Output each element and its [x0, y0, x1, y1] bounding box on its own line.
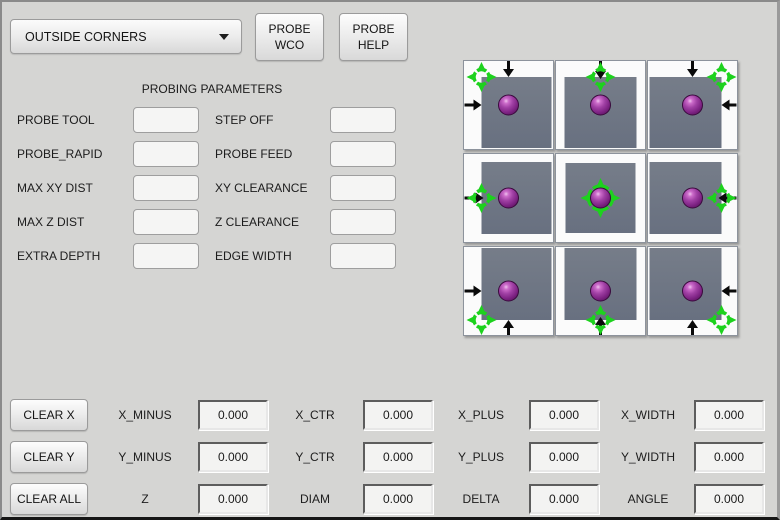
max-xy-dist-input[interactable]	[133, 175, 199, 201]
probe-help-button-label-line2: HELP	[358, 37, 389, 53]
parameter-row: MAX Z DIST Z CLEARANCE	[2, 208, 462, 236]
chevron-down-icon	[219, 34, 229, 40]
approach-arrow-up-icon	[687, 320, 698, 335]
approach-arrow-down-icon	[503, 61, 514, 77]
y-minus-readout: 0.000	[198, 442, 268, 472]
probe-ball-icon	[499, 95, 519, 115]
probe-cell-graphic	[464, 61, 553, 149]
workpiece-face	[482, 77, 552, 148]
probe-help-button-label-line1: PROBE	[352, 21, 394, 37]
z-label: Z	[102, 483, 188, 515]
approach-arrow-down-icon	[687, 61, 698, 77]
probe-ball-icon	[591, 95, 611, 115]
max-z-dist-label: MAX Z DIST	[17, 208, 84, 236]
y-ctr-label: Y_CTR	[272, 441, 358, 473]
probe-bottom-right-corner-button[interactable]	[647, 246, 738, 336]
probe-wco-button-label-line2: WCO	[275, 37, 304, 53]
probe-ball-icon	[499, 281, 519, 301]
z-clearance-input[interactable]	[330, 209, 396, 235]
probe-mode-select[interactable]: OUTSIDE CORNERS	[10, 19, 242, 54]
x-ctr-readout: 0.000	[363, 400, 433, 430]
x-minus-label: X_MINUS	[102, 399, 188, 431]
probe-top-edge-button[interactable]	[555, 60, 646, 150]
approach-arrow-up-icon	[503, 320, 514, 335]
delta-label: DELTA	[438, 483, 524, 515]
parameter-row: MAX XY DIST XY CLEARANCE	[2, 174, 462, 202]
angle-label: ANGLE	[605, 483, 691, 515]
probe-cell-graphic	[648, 154, 737, 242]
y-plus-label: Y_PLUS	[438, 441, 524, 473]
extra-depth-label: EXTRA DEPTH	[17, 242, 100, 270]
probe-ball-icon	[591, 281, 611, 301]
extra-depth-input[interactable]	[133, 243, 199, 269]
parameter-row: EXTRA DEPTH EDGE WIDTH	[2, 242, 462, 270]
clear-all-button-label: CLEAR ALL	[17, 492, 81, 506]
z-readout: 0.000	[198, 484, 268, 514]
probe-cell-graphic	[648, 61, 737, 149]
probing-parameters-title: PROBING PARAMETERS	[2, 82, 422, 96]
step-off-label: STEP OFF	[215, 106, 273, 134]
approach-arrow-right-icon	[465, 100, 482, 111]
diam-label: DIAM	[272, 483, 358, 515]
probe-tool-input[interactable]	[133, 107, 199, 133]
clear-y-button[interactable]: CLEAR Y	[10, 441, 88, 473]
x-plus-readout: 0.000	[529, 400, 599, 430]
probe-bottom-edge-button[interactable]	[555, 246, 646, 336]
workpiece-face	[482, 248, 552, 320]
probe-ball-icon	[683, 95, 703, 115]
probing-window: OUTSIDE CORNERS PROBE WCO PROBE HELP PRO…	[0, 0, 780, 520]
clear-all-button[interactable]: CLEAR ALL	[10, 483, 88, 515]
y-width-readout: 0.000	[694, 442, 764, 472]
x-plus-label: X_PLUS	[438, 399, 524, 431]
probe-left-edge-button[interactable]	[463, 153, 554, 243]
probe-ball-icon	[591, 188, 611, 208]
z-clearance-label: Z CLEARANCE	[215, 208, 299, 236]
parameter-row: PROBE TOOL STEP OFF	[2, 106, 462, 134]
probe-cell-graphic	[556, 61, 645, 149]
y-minus-label: Y_MINUS	[102, 441, 188, 473]
y-ctr-readout: 0.000	[363, 442, 433, 472]
probe-cell-graphic	[464, 247, 553, 335]
clear-x-button-label: CLEAR X	[23, 408, 74, 422]
clear-y-button-label: CLEAR Y	[23, 450, 74, 464]
edge-width-label: EDGE WIDTH	[215, 242, 292, 270]
x-minus-readout: 0.000	[198, 400, 268, 430]
y-width-label: Y_WIDTH	[605, 441, 691, 473]
probe-cell-graphic	[556, 154, 645, 242]
probe-cell-graphic	[556, 247, 645, 335]
approach-arrow-left-icon	[722, 100, 737, 111]
probe-cell-graphic	[464, 154, 553, 242]
delta-readout: 0.000	[529, 484, 599, 514]
probe-wco-button[interactable]: PROBE WCO	[255, 13, 324, 61]
probe-ball-icon	[499, 188, 519, 208]
parameter-row: PROBE_RAPID PROBE FEED	[2, 140, 462, 168]
probe-help-button[interactable]: PROBE HELP	[339, 13, 408, 61]
approach-arrow-left-icon	[722, 286, 737, 297]
x-width-readout: 0.000	[694, 400, 764, 430]
clear-x-button[interactable]: CLEAR X	[10, 399, 88, 431]
probe-bottom-left-corner-button[interactable]	[463, 246, 554, 336]
probe-tool-label: PROBE TOOL	[17, 106, 95, 134]
step-off-input[interactable]	[330, 107, 396, 133]
probe-rapid-input[interactable]	[133, 141, 199, 167]
probe-right-edge-button[interactable]	[647, 153, 738, 243]
diam-readout: 0.000	[363, 484, 433, 514]
probe-feed-label: PROBE FEED	[215, 140, 292, 168]
xy-clearance-input[interactable]	[330, 175, 396, 201]
probe-rapid-label: PROBE_RAPID	[17, 140, 102, 168]
probe-center-button[interactable]	[555, 153, 646, 243]
x-ctr-label: X_CTR	[272, 399, 358, 431]
probe-cell-graphic	[648, 247, 737, 335]
approach-arrow-right-icon	[465, 286, 482, 297]
probe-feed-input[interactable]	[330, 141, 396, 167]
xy-clearance-label: XY CLEARANCE	[215, 174, 307, 202]
probe-top-left-corner-button[interactable]	[463, 60, 554, 150]
x-width-label: X_WIDTH	[605, 399, 691, 431]
max-z-dist-input[interactable]	[133, 209, 199, 235]
probe-ball-icon	[683, 188, 703, 208]
probe-wco-button-label-line1: PROBE	[268, 21, 310, 37]
probe-mode-value: OUTSIDE CORNERS	[25, 30, 219, 44]
max-xy-dist-label: MAX XY DIST	[17, 174, 93, 202]
edge-width-input[interactable]	[330, 243, 396, 269]
y-plus-readout: 0.000	[529, 442, 599, 472]
probe-ball-icon	[683, 281, 703, 301]
probe-top-right-corner-button[interactable]	[647, 60, 738, 150]
angle-readout: 0.000	[694, 484, 764, 514]
